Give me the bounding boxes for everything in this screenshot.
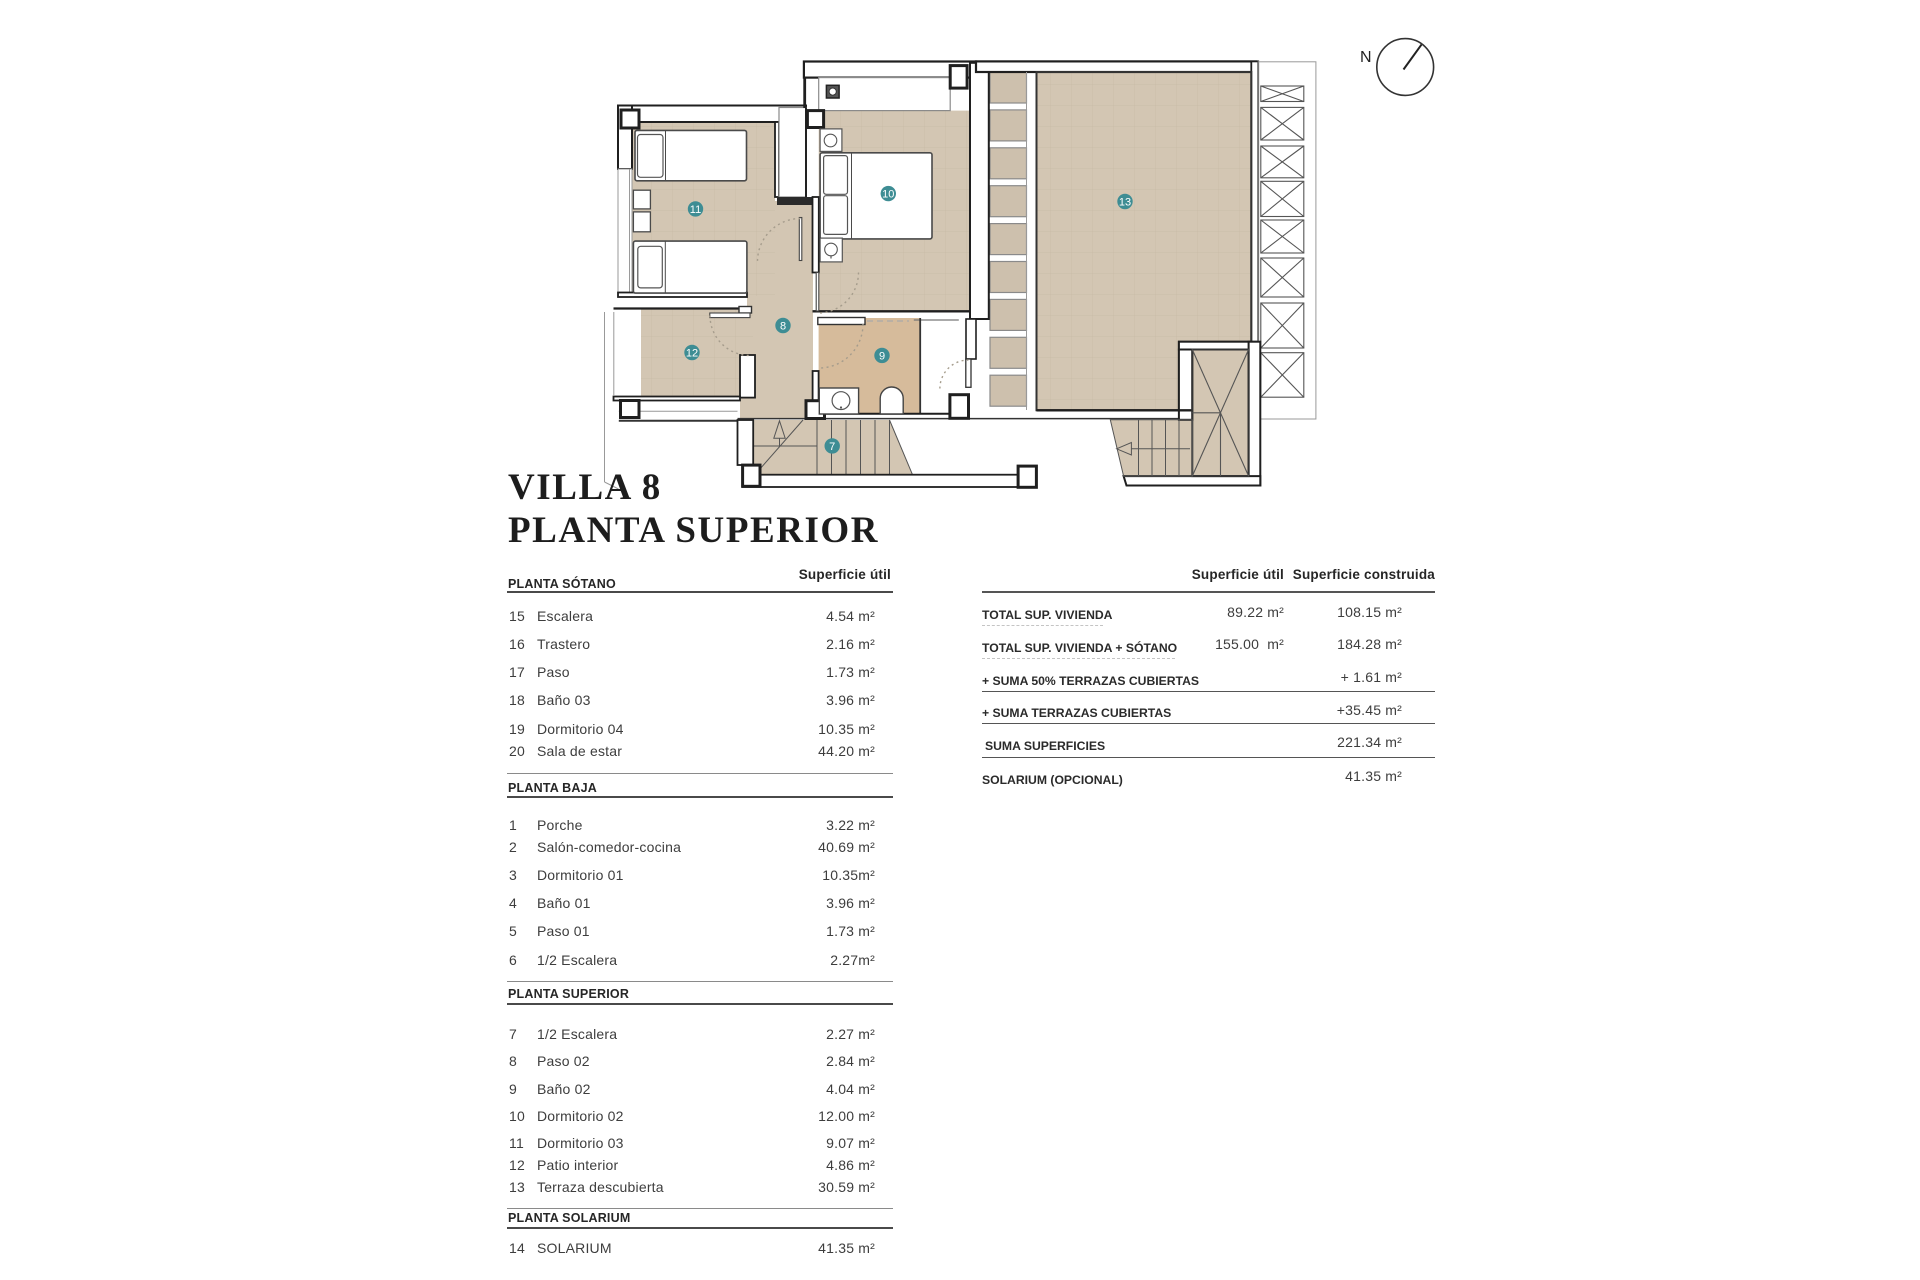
svg-text:12: 12 xyxy=(686,347,698,359)
svg-text:N: N xyxy=(1360,49,1372,66)
svg-text:7: 7 xyxy=(829,441,835,453)
svg-text:9: 9 xyxy=(879,350,885,362)
svg-text:8: 8 xyxy=(780,320,786,332)
svg-text:10: 10 xyxy=(882,189,894,201)
svg-text:11: 11 xyxy=(690,204,701,216)
svg-text:13: 13 xyxy=(1119,196,1131,208)
